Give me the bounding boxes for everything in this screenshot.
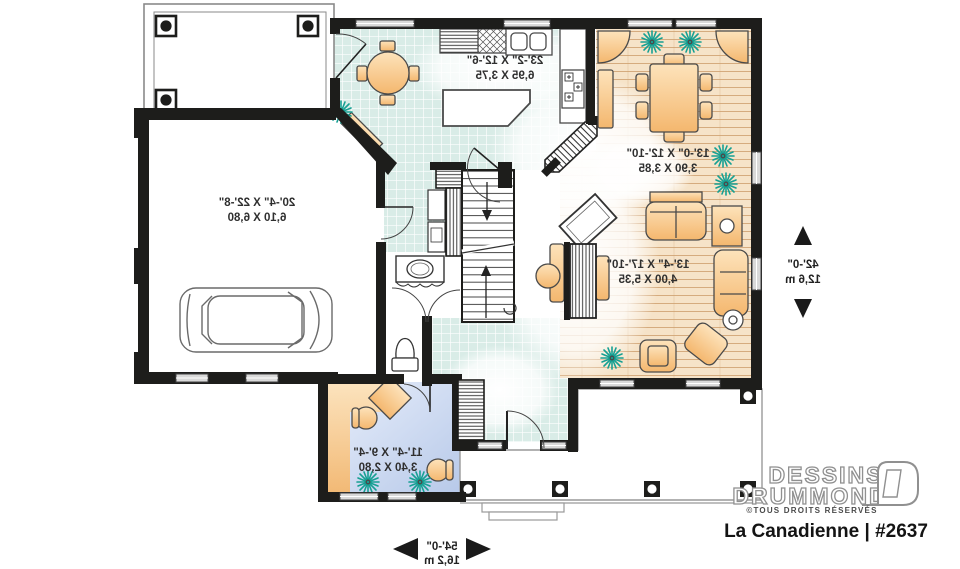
deck-post <box>298 16 318 36</box>
arrow-up-icon <box>794 226 812 245</box>
dining-table <box>650 64 698 132</box>
veranda-corner-post <box>740 388 756 404</box>
depth-metric: 12,6 m <box>785 274 821 286</box>
laundry-appliance <box>428 190 445 220</box>
window <box>356 20 414 27</box>
veranda-post <box>644 481 660 497</box>
plant-icon <box>712 145 734 167</box>
stove <box>562 70 584 108</box>
kitchen-dim-metric: 6,95 X 3,75 <box>475 70 534 82</box>
dining-dim-metric: 3,90 X 3,85 <box>638 163 697 175</box>
width-metric: 16,2 m <box>424 555 460 567</box>
rear-deck <box>144 4 334 110</box>
foyer-closet <box>458 380 484 440</box>
floor-plan-canvas: 20'-4" X 22'-8" 6,10 X 6,80 23'-2" X 12'… <box>0 0 960 569</box>
deck-post <box>156 90 176 110</box>
office-dim-metric: 3,40 X 2,80 <box>359 462 418 474</box>
window <box>676 20 716 27</box>
depth-imperial: 42'-0" <box>787 259 818 271</box>
plant-icon <box>715 173 737 195</box>
buffet <box>598 70 613 128</box>
garage-dim-metric: 6,10 X 6,80 <box>228 212 287 224</box>
sofa <box>714 250 748 316</box>
living-dim-metric: 4,00 X 5,35 <box>618 274 677 286</box>
width-dimension: 54'-0" 16,2 m <box>393 538 491 567</box>
depth-dimension: 42'-0" 12,6 m <box>785 226 821 318</box>
veranda-steps <box>482 503 564 512</box>
window <box>388 493 416 500</box>
window <box>628 20 672 27</box>
window <box>686 380 720 387</box>
window <box>752 152 761 184</box>
plant-icon <box>357 471 379 493</box>
arrow-right-icon <box>466 538 491 560</box>
plant-icon <box>409 471 431 493</box>
arrow-down-icon <box>794 299 812 318</box>
plant-icon <box>601 347 623 369</box>
arrow-left-icon <box>393 538 418 560</box>
plant-icon <box>679 31 701 53</box>
window <box>340 493 378 500</box>
veranda-post <box>552 481 568 497</box>
window <box>600 380 634 387</box>
kitchen-dim-imperial: 23'-2" X 12'-6" <box>467 55 543 67</box>
console-table <box>650 192 702 202</box>
garage-label: 20'-4" X 22'-8" 6,10 X 6,80 <box>219 197 295 224</box>
sidelight-window <box>542 442 566 449</box>
living-dim-imperial: 13'-4" X 17'-10" <box>607 259 690 271</box>
garage-vent <box>246 374 278 382</box>
garage-vent <box>176 374 208 382</box>
deck-post <box>156 16 176 36</box>
garage-dim-imperial: 20'-4" X 22'-8" <box>219 197 295 209</box>
staircase <box>462 170 516 322</box>
sidelight-window <box>478 442 502 449</box>
plan-name-label: La Canadienne | #2637 <box>724 521 928 542</box>
rights-text: ©TOUS DROITS RÉSERVÉS <box>746 506 877 515</box>
window <box>752 258 761 290</box>
laundry-appliance <box>428 222 445 252</box>
dining-dim-imperial: 13'-0" X 12'-10" <box>627 148 710 160</box>
window <box>504 20 550 27</box>
office-dim-imperial: 11'-4" X 9'-4" <box>353 447 422 459</box>
plant-icon <box>641 31 663 53</box>
car <box>180 288 332 352</box>
width-imperial: 54'-0" <box>426 541 457 553</box>
